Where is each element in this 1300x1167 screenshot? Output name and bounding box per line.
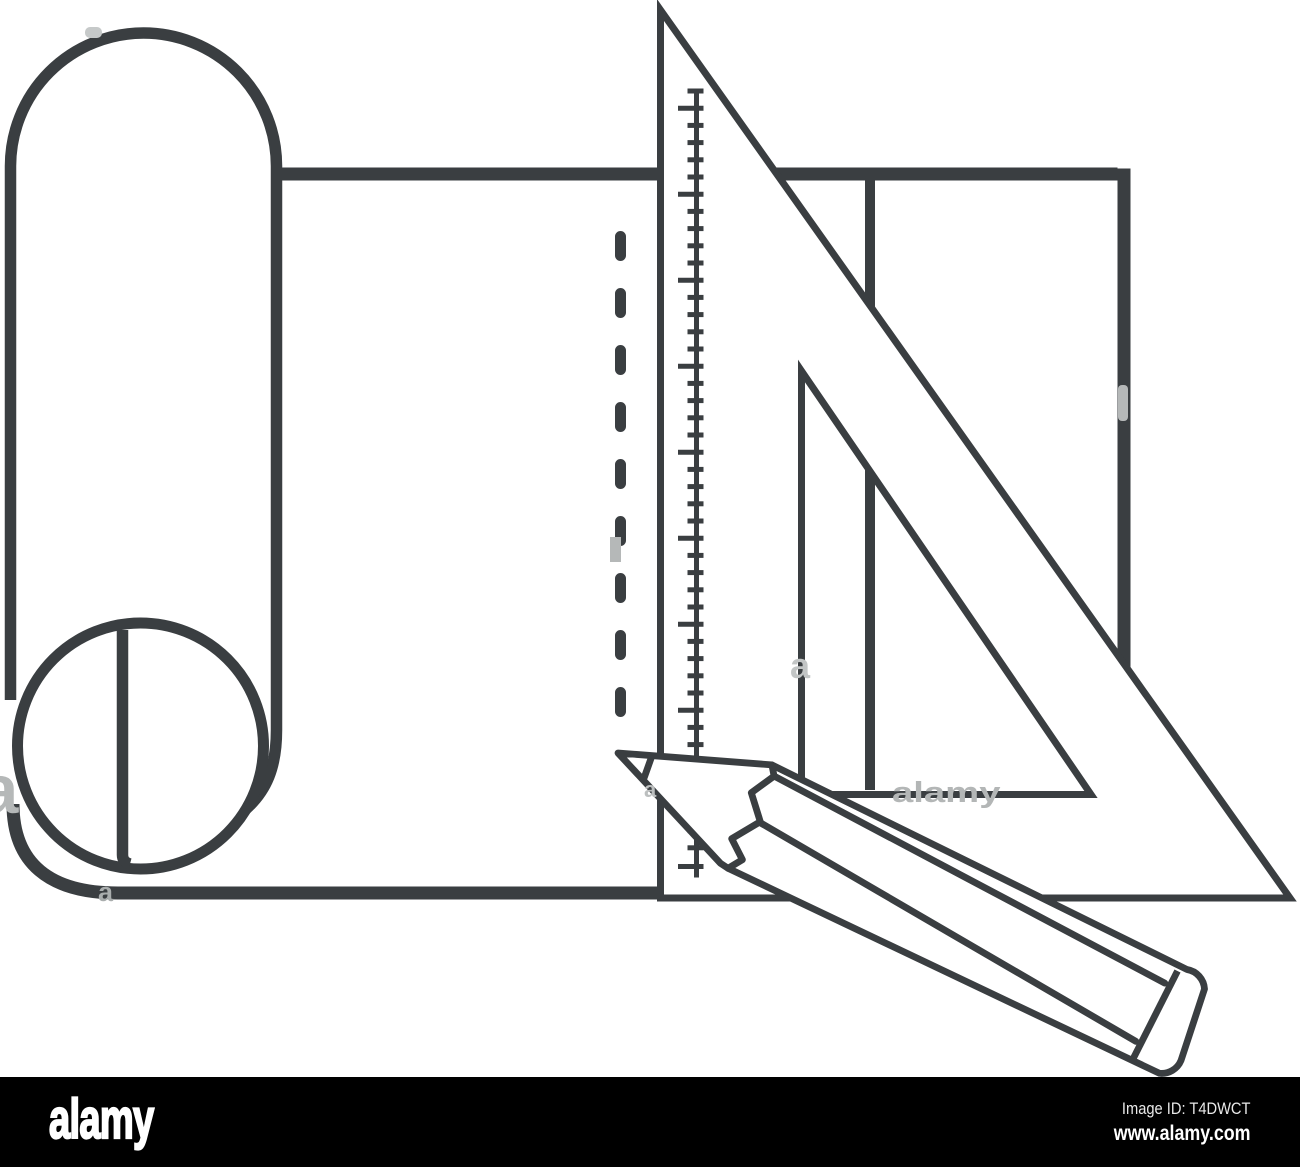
svg-text:alamy: alamy xyxy=(49,1089,155,1151)
svg-text:a: a xyxy=(98,877,114,907)
svg-text:www.alamy.com: www.alamy.com xyxy=(1113,1122,1251,1146)
svg-text:Image ID: T4DWCT: Image ID: T4DWCT xyxy=(1122,1100,1251,1118)
svg-text:a: a xyxy=(644,777,657,802)
svg-text:a: a xyxy=(790,645,811,686)
svg-text:a: a xyxy=(0,751,19,828)
svg-text:alamy: alamy xyxy=(892,776,1001,808)
